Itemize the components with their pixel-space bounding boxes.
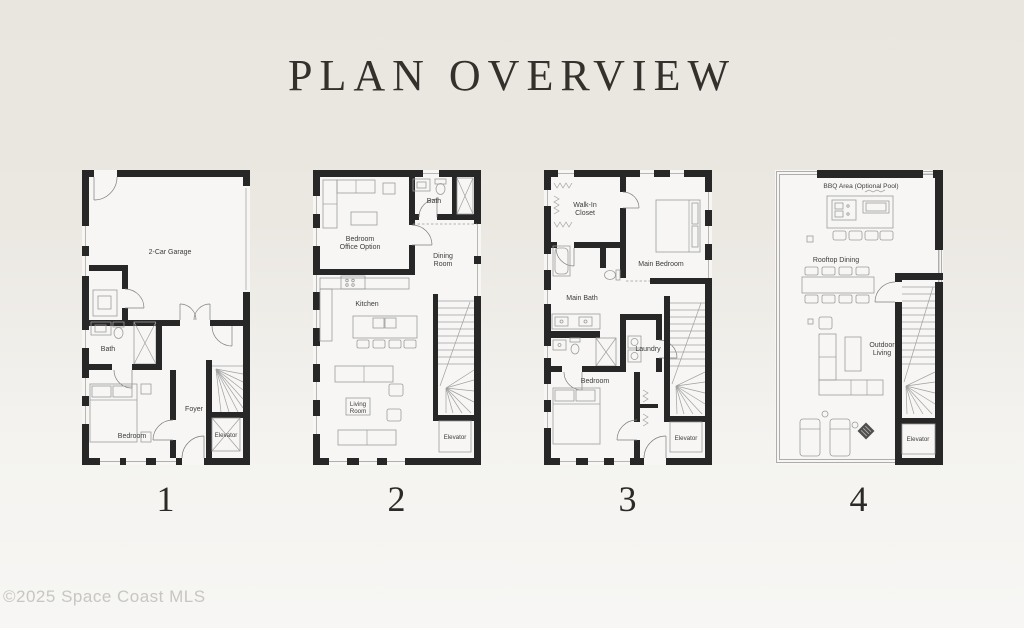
room-label-elevator: Elevator: [214, 432, 237, 439]
room-label-main-bath: Main Bath: [566, 295, 598, 302]
room-label-bedroom: Bedroom: [117, 433, 146, 440]
room-label-walkin-2: Closet: [575, 210, 595, 217]
floorplan-4: BBQ Area (Optional Pool) Rooftop Dining …: [775, 170, 943, 465]
room-label-bath: Bath: [426, 198, 441, 205]
room-label-outdoor-2: Living: [872, 350, 890, 357]
room-label-living-1: Living: [349, 401, 366, 408]
floorplan-2: Bedroom Office Option Bath Dining Room K…: [313, 170, 481, 465]
room-label-bedroom: Bedroom: [580, 378, 609, 385]
garage-door: [243, 186, 250, 292]
room-label-bath: Bath: [100, 346, 115, 353]
room-label-garage: 2-Car Garage: [148, 249, 191, 256]
room-label-elevator: Elevator: [443, 434, 466, 441]
page-title: PLAN OVERVIEW: [0, 52, 1024, 100]
room-label-walkin-1: Walk-In: [573, 202, 597, 209]
room-label-bedroom-office-1: Bedroom: [345, 236, 374, 243]
room-label-living-2: Room: [349, 408, 366, 415]
plan-1-column: 2-Car Garage Bath Bedroom Foyer Elevator…: [82, 170, 250, 517]
floorplan-3: Walk-In Closet Main Bedroom Main Bath La…: [544, 170, 712, 465]
watermark: ©2025 Space Coast MLS: [3, 587, 206, 607]
room-label-bbq: BBQ Area (Optional Pool): [823, 183, 898, 190]
room-label-main-bedroom: Main Bedroom: [638, 261, 684, 268]
room-label-foyer: Foyer: [185, 406, 204, 413]
room-label-elevator: Elevator: [674, 435, 697, 442]
plan-number-1: 1: [157, 481, 175, 517]
room-label-kitchen: Kitchen: [355, 301, 378, 308]
plan-2-column: Bedroom Office Option Bath Dining Room K…: [313, 170, 481, 517]
plan-3-column: Walk-In Closet Main Bedroom Main Bath La…: [544, 170, 712, 517]
room-label-outdoor-1: Outdoor: [869, 342, 895, 349]
plan-number-3: 3: [619, 481, 637, 517]
room-label-dining-1: Dining: [433, 253, 453, 260]
plan-4-column: BBQ Area (Optional Pool) Rooftop Dining …: [775, 170, 943, 517]
room-label-bedroom-office-2: Office Option: [339, 244, 380, 251]
room-label-laundry: Laundry: [635, 346, 661, 353]
plan-number-2: 2: [388, 481, 406, 517]
room-label-rooftop-dining: Rooftop Dining: [812, 257, 858, 264]
plan-number-4: 4: [850, 481, 868, 517]
floorplan-1: 2-Car Garage Bath Bedroom Foyer Elevator: [82, 170, 250, 465]
floorplans-row: 2-Car Garage Bath Bedroom Foyer Elevator…: [0, 170, 1024, 517]
room-label-dining-2: Room: [433, 261, 452, 268]
room-label-elevator: Elevator: [906, 436, 929, 443]
